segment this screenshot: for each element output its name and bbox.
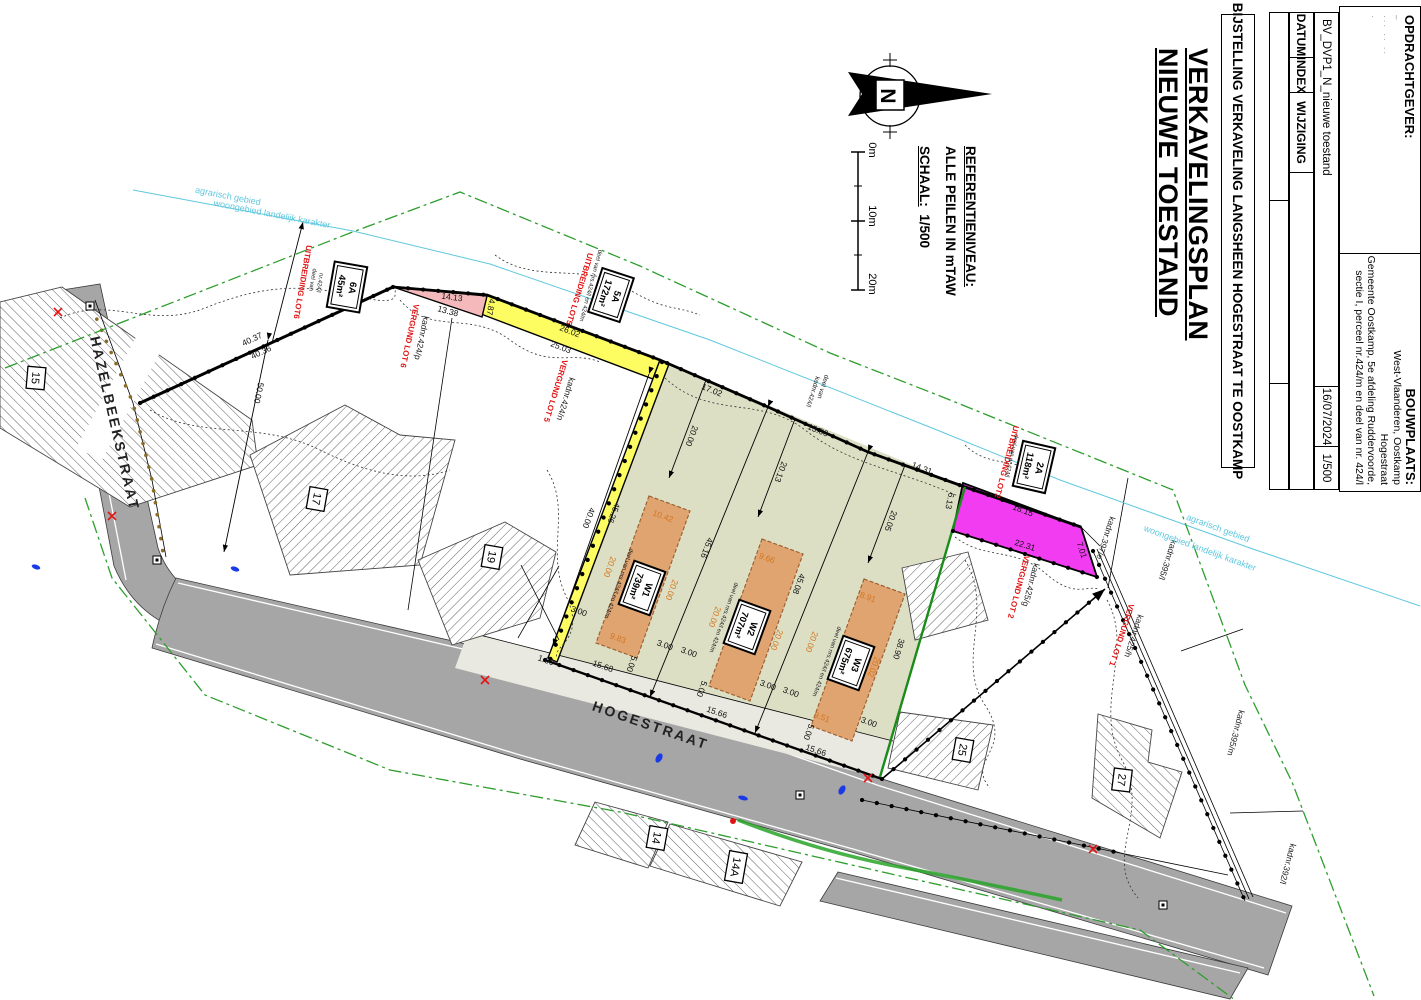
drawing-file-name: BV_DVP1_N_nieuwe toestand [1315,13,1338,387]
building-parcel-25b [888,712,993,790]
subtitle-text: BIJSTELLING VERKAVELING LANGSHEEN HOGEST… [1231,3,1246,480]
rev-header-index: INDEX [1290,58,1313,93]
dim-40-37: 40.37 [240,330,264,348]
title-line-1: VERKAVELINGSPLAN [1183,48,1213,340]
zone-woongebied: woongebied landelijk karakter [212,198,331,231]
revision-marks-column [1269,12,1289,490]
scalebar-10m: 10m [866,205,878,226]
drawing-scale: 1/500 [1315,447,1338,489]
parcel-tag-14: 14 [646,826,668,851]
site-header: BOUWPLAATS: [1403,256,1418,485]
site-section: BOUWPLAATS: West-Vlaanderen, Oostkamp Ho… [1340,254,1420,491]
drawing-info-row: BV_DVP1_N_nieuwe toestand 16/07/2024 1/5… [1314,12,1339,490]
plan-sheet: W1739m²W2707m²W3675m²6A45m²5A172m²2A118m… [0,0,1421,1000]
client-header: OPDRACHTGEVER: [1402,15,1417,245]
dim-40-36: 40.36 [249,343,273,361]
reference-header: REFERENTIENIVEAU: [960,146,980,326]
scale-text: SCHAAL: 1/500 [914,146,934,326]
client-redaction: ··· ·· ·· [1378,15,1390,245]
revision-header-column: DATUM INDEX WIJZIGING [1289,12,1314,490]
kadnr-395l: kadnr.395/l [1157,539,1179,582]
scalebar-20m: 20m [866,273,878,294]
parcel-tag-27: 27 [1112,768,1133,792]
client-redaction: · [1366,15,1378,245]
parcel-tag-25: 25 [952,738,974,763]
building-parcel-19 [418,522,556,645]
rev-header-wijziging: WIJZIGING [1290,93,1313,173]
building-parcel-27 [1092,714,1182,838]
kadnr-392l: kadnr.392/l [1278,843,1298,886]
site-line: sectie I, perceel nr.424/m en deel van n… [1352,256,1365,485]
kadnr-395m: kadnr.395/m [1225,709,1247,757]
north-arrow [848,53,992,139]
drawing-date: 16/07/2024 [1315,387,1338,447]
site-line: West-Vlaanderen, Oostkamp [1390,256,1403,485]
parcel-number: 17 [309,492,323,506]
parcel-line [1181,629,1243,651]
rev-empty-cell [1270,201,1288,384]
site-line: Hogestraat [1377,256,1390,485]
parcel-number: 19 [484,550,498,564]
building-parcel-17 [250,405,455,575]
subtitle-box: BIJSTELLING VERKAVELING LANGSHEEN HOGEST… [1221,14,1255,468]
reference-legend: REFERENTIENIVEAU: ALLE PEILEN IN mTAW SC… [914,146,980,326]
parcel-number: 25 [955,743,969,757]
parcel-number: 15 [28,371,41,384]
client-section: OPDRACHTGEVER: – ··· ·· ·· · [1340,7,1420,254]
parcel-tag-19: 19 [481,545,503,570]
parcel-tag-15: 15 [26,366,46,389]
parcel-number: 14 [649,831,663,845]
scale-bar [851,152,865,290]
rev-empty-cell [1270,384,1288,489]
parcel-number: 27 [1114,773,1127,787]
scale-value: 1/500 [917,214,932,248]
client-redaction: – [1390,15,1402,245]
client-site-block: OPDRACHTGEVER: – ··· ·· ·· · BOUWPLAATS:… [1339,6,1421,492]
scale-word: SCHAAL: [917,146,932,207]
rev-empty-cell [1290,173,1313,489]
page-title: VERKAVELINGSPLAN NIEUWE TOESTAND [1153,48,1213,340]
site-line: Gemeente Oostkamp, 5e afdeling Ruddervoo… [1365,256,1378,485]
parcel-tag-17: 17 [306,487,328,512]
lot-id: 6A [345,281,358,295]
lot-tag-2A: 2A118m² [1013,441,1056,493]
rev-header-datum: DATUM [1290,13,1313,58]
parcel-line [1230,811,1303,813]
dim-50-00: 50.00 [252,382,266,405]
north-letter: N [876,88,899,103]
building-parcel-25a [902,552,988,640]
title-line-2: NIEUWE TOESTAND [1153,48,1183,340]
scalebar-0m: 0m [866,142,878,157]
reference-text: ALLE PEILEN IN mTAW [941,146,961,326]
rev-empty-cell [1270,13,1288,201]
lot-tag-6A: 6A45m² [327,261,367,312]
